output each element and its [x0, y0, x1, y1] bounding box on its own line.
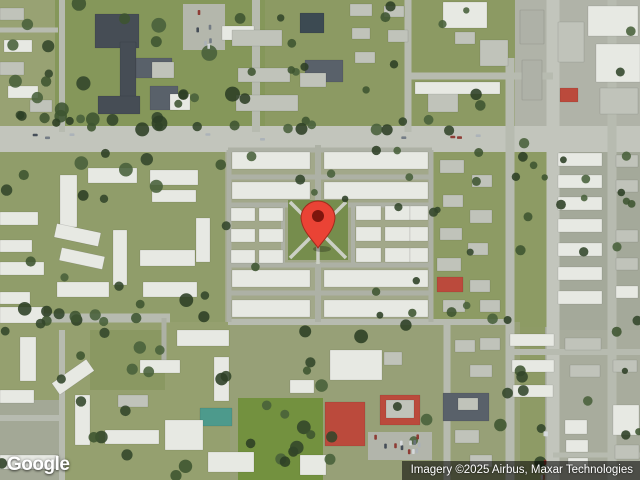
satellite-map-image [0, 0, 640, 480]
map-viewport[interactable]: Google Imagery ©2025 Airbus, Maxar Techn… [0, 0, 640, 480]
map-attribution: Imagery ©2025 Airbus, Maxar Technologies [402, 461, 640, 480]
google-logo[interactable]: Google [7, 454, 69, 476]
